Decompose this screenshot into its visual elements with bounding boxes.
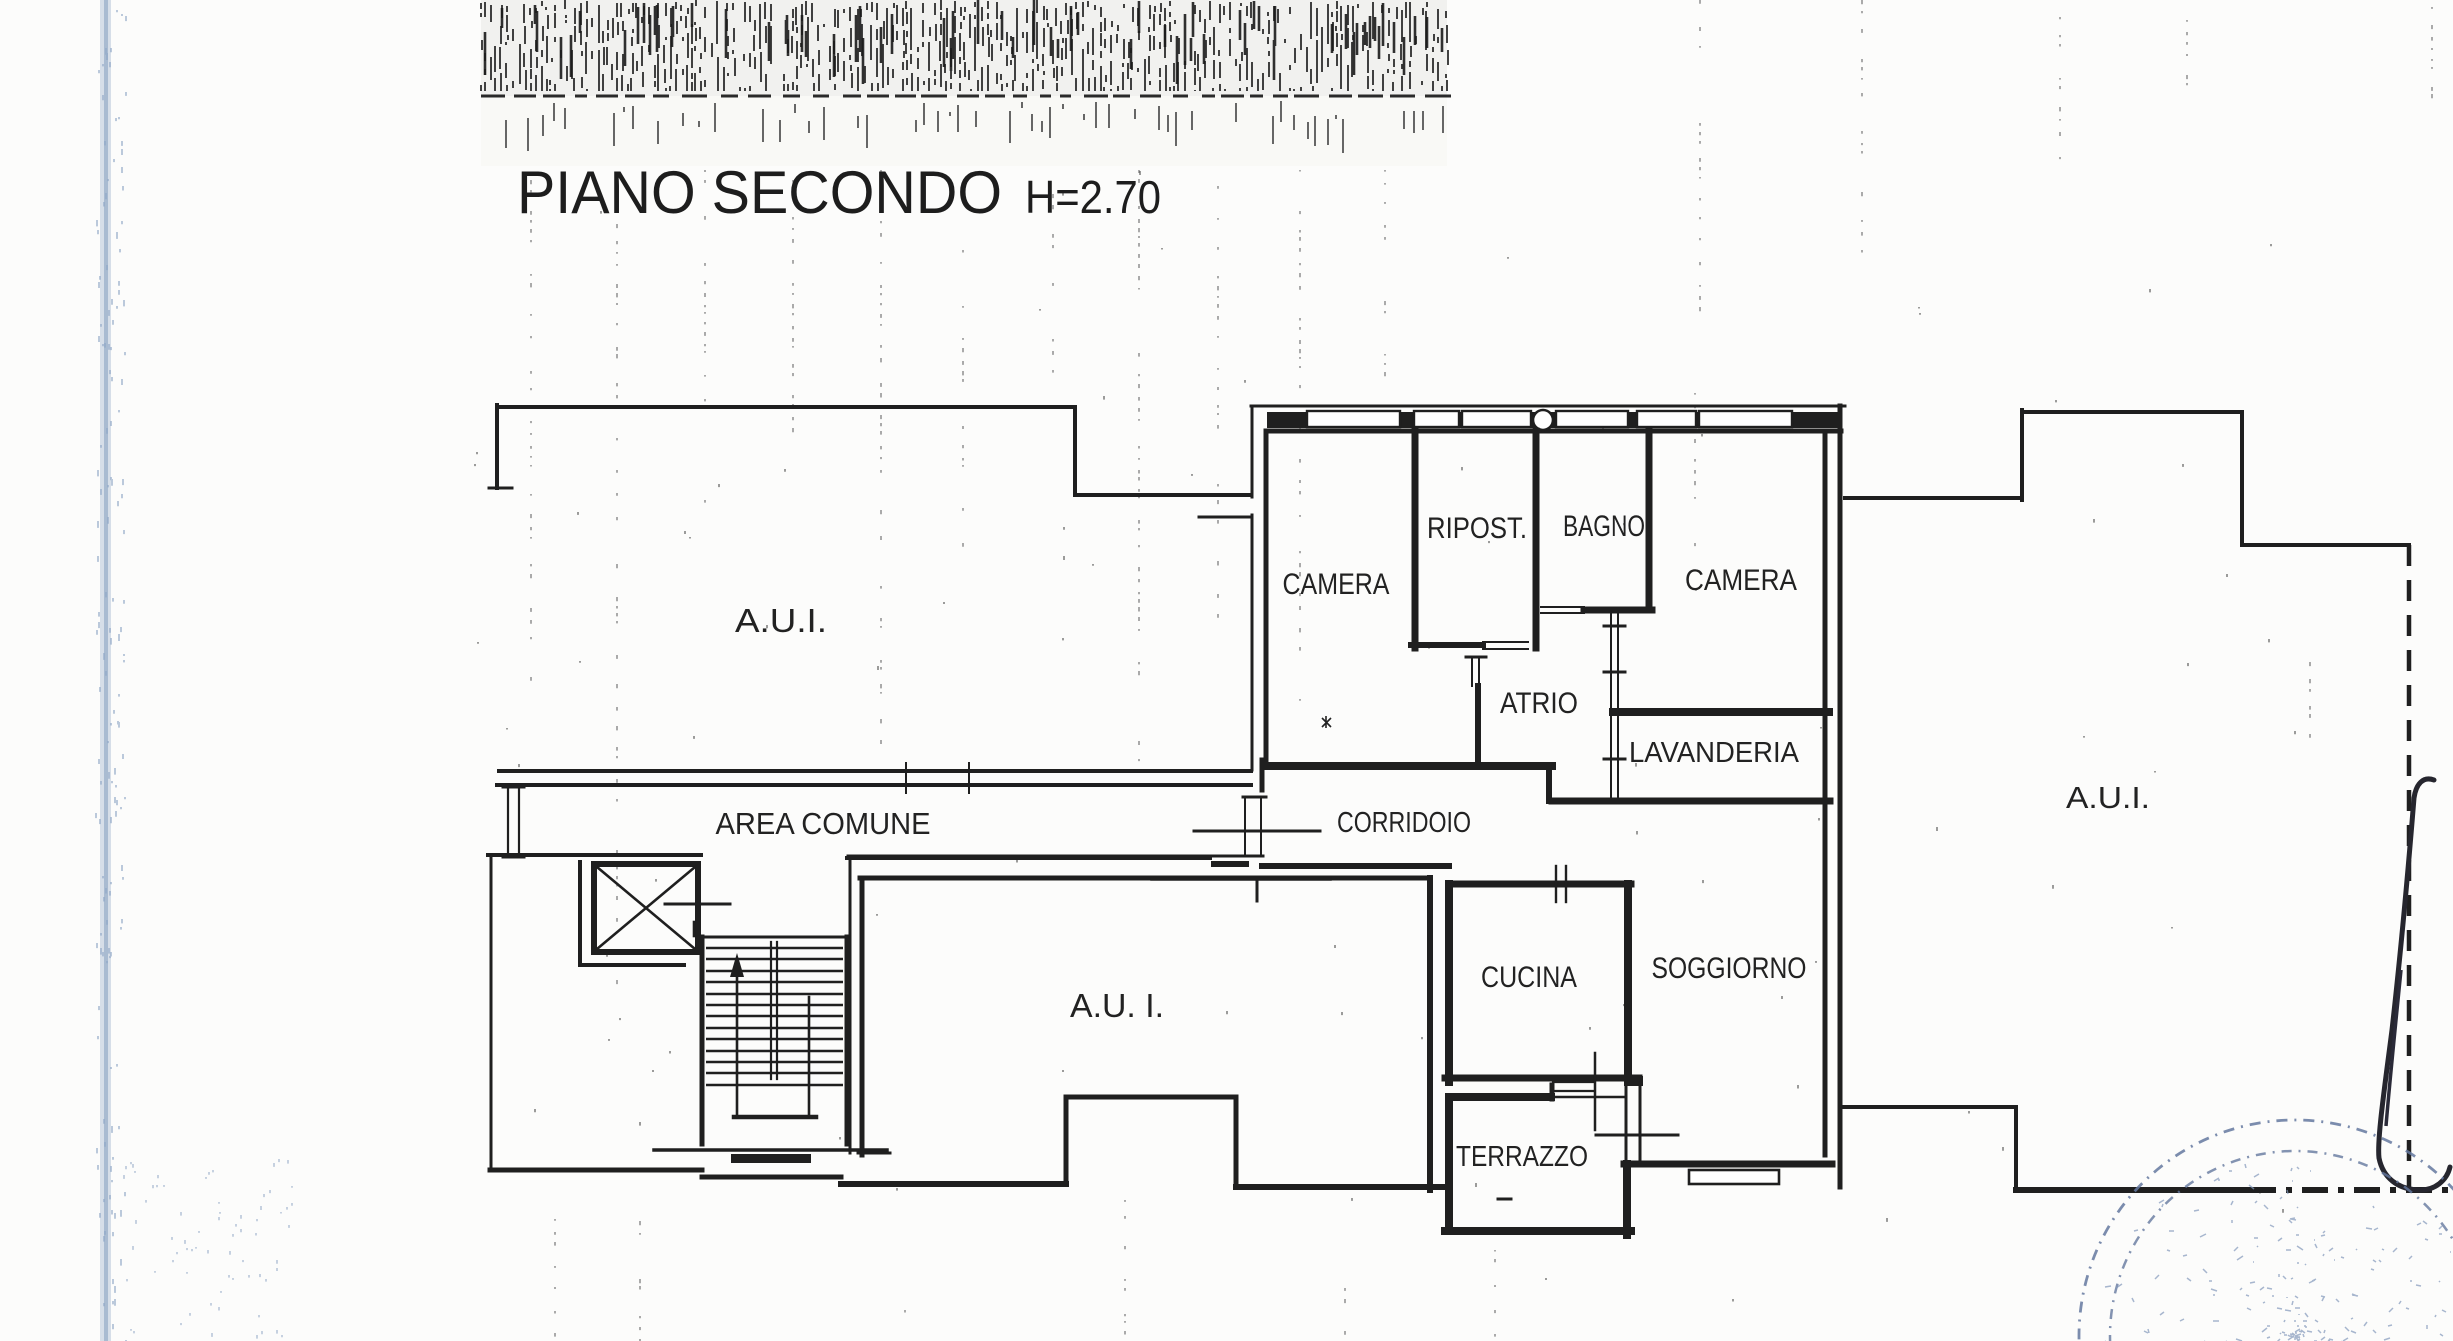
svg-text:CAMERA: CAMERA [1685, 564, 1797, 597]
svg-text:SOGGIORNO: SOGGIORNO [1652, 952, 1807, 985]
svg-text:A.U. I.: A.U. I. [1070, 987, 1164, 1024]
svg-text:TERRAZZO: TERRAZZO [1456, 1141, 1588, 1173]
svg-text:PIANO SECONDO: PIANO SECONDO [517, 159, 1002, 226]
svg-text:A.U.I.: A.U.I. [2066, 780, 2150, 815]
svg-text:AREA COMUNE: AREA COMUNE [716, 806, 931, 841]
svg-text:CORRIDOIO: CORRIDOIO [1337, 807, 1471, 839]
svg-text:BAGNO: BAGNO [1563, 510, 1645, 543]
svg-text:RIPOST.: RIPOST. [1427, 512, 1527, 545]
svg-text:CAMERA: CAMERA [1283, 568, 1390, 601]
svg-text:CUCINA: CUCINA [1481, 961, 1577, 994]
svg-text:H=2.70: H=2.70 [1025, 171, 1161, 223]
svg-text:LAVANDERIA: LAVANDERIA [1629, 737, 1800, 769]
svg-text:A.U.I.: A.U.I. [735, 602, 827, 639]
svg-text:ATRIO: ATRIO [1500, 687, 1578, 720]
